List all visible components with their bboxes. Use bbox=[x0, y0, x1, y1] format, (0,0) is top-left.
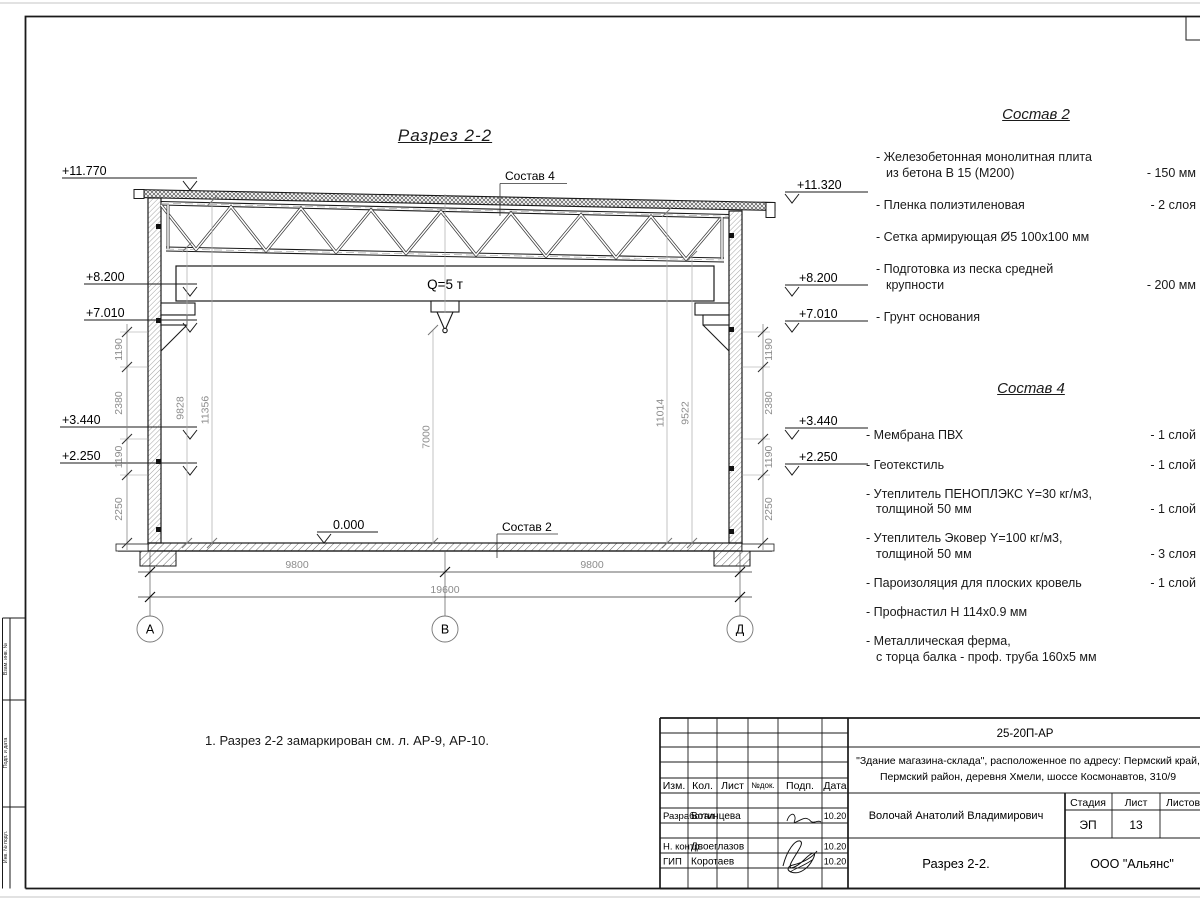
titleblock-date: 10.20 bbox=[824, 857, 847, 867]
elevation-value: +11.320 bbox=[797, 178, 842, 192]
titleblock-name: Двоеглазов bbox=[691, 842, 744, 853]
corbel-right bbox=[695, 303, 729, 351]
dim-value: 9828 bbox=[175, 396, 187, 420]
dim-value: 7000 bbox=[421, 425, 433, 449]
titleblock-drawing-name: Разрез 2-2. bbox=[922, 856, 989, 871]
titleblock-sheets-label: Листов bbox=[1166, 797, 1200, 809]
titleblock-doc-number: 25-20П-АР bbox=[997, 728, 1054, 740]
spec-item: - Утеплитель ПЕНОПЛЭКС Y=30 кг/м3, толщи… bbox=[866, 487, 1196, 518]
spec-item: - Геотекстиль - 1 слой bbox=[866, 458, 1196, 473]
dim-value: 1190 bbox=[113, 446, 125, 469]
callout-roof-label: Состав 4 bbox=[505, 169, 555, 183]
titleblock-name: Вотинцева bbox=[691, 811, 741, 822]
wall-left bbox=[148, 198, 161, 543]
spec-list-4: Состав 4 - Мембрана ПВХ - 1 слой - Геоте… bbox=[866, 380, 1196, 679]
dim-value: 1190 bbox=[113, 338, 125, 361]
dim-value: 19600 bbox=[430, 584, 459, 596]
dim-value: 9800 bbox=[580, 559, 604, 571]
side-strip-label: Инв. № подл. bbox=[3, 831, 9, 863]
axis-label: А bbox=[146, 623, 155, 637]
elevation-value: +8.200 bbox=[86, 270, 125, 284]
foundation-left bbox=[140, 551, 176, 566]
corbel-left bbox=[161, 303, 195, 351]
spec-item: - Пленка полиэтиленовая - 2 слоя bbox=[876, 198, 1196, 213]
titleblock-stage-label: Стадия bbox=[1070, 797, 1106, 809]
section-title: Разрез 2-2 bbox=[370, 126, 520, 146]
dim-value: 11356 bbox=[200, 396, 212, 425]
floor-slab bbox=[148, 543, 742, 551]
drawing-sheet: Взам. инв. № Подп. и дата Инв. № подл. bbox=[0, 0, 1200, 900]
elevation-value: +2.250 bbox=[799, 450, 838, 464]
titleblock-col-data: Дата bbox=[823, 780, 846, 792]
axis-label: Д bbox=[736, 623, 745, 637]
titleblock-stage-value: ЭП bbox=[1079, 818, 1096, 832]
truss-web bbox=[161, 205, 722, 259]
spec-item: - Сетка армирующая Ø5 100х100 мм bbox=[876, 230, 1196, 245]
dim-value: 2250 bbox=[113, 497, 125, 521]
drawing-note: 1. Разрез 2-2 замаркирован см. л. АР-9, … bbox=[205, 733, 489, 748]
dim-value: 2250 bbox=[763, 497, 775, 521]
dim-value: 1190 bbox=[763, 338, 775, 361]
dim-value: 2380 bbox=[763, 391, 775, 415]
titleblock-author: Волочай Анатолий Владимирович bbox=[869, 810, 1044, 822]
spec4-title: Состав 4 bbox=[866, 380, 1196, 398]
axis-label: В bbox=[441, 623, 449, 637]
titleblock-company: ООО "Альянс" bbox=[1090, 857, 1174, 871]
dim-value: 9800 bbox=[285, 559, 309, 571]
titleblock-col-kol: Кол. bbox=[692, 780, 713, 792]
titleblock-col-podp: Подп. bbox=[786, 780, 814, 792]
spec-list-2: Состав 2 - Железобетонная монолитная пли… bbox=[876, 106, 1196, 342]
elevation-value: +11.770 bbox=[62, 164, 107, 178]
apron-left bbox=[116, 544, 148, 551]
elevation-value: +3.440 bbox=[799, 414, 838, 428]
spec-item: - Пароизоляция для плоских кровель - 1 с… bbox=[866, 576, 1196, 591]
zero-level-value: 0.000 bbox=[333, 518, 364, 532]
elevation-value: +7.010 bbox=[86, 306, 125, 320]
side-strip-label: Взам. инв. № bbox=[3, 642, 9, 675]
titleblock-object-line1: "Здание магазина-склада", расположенное … bbox=[856, 755, 1200, 767]
foundation-right bbox=[714, 551, 750, 566]
elevation-value: +2.250 bbox=[62, 449, 101, 463]
titleblock-object-line2: Пермский район, деревня Хмели, шоссе Кос… bbox=[880, 771, 1176, 783]
dim-value: 1190 bbox=[763, 446, 775, 469]
elevation-value: +8.200 bbox=[799, 271, 838, 285]
titleblock-name: Коротаев bbox=[691, 857, 734, 868]
titleblock-sheet-label: Лист bbox=[1125, 797, 1148, 809]
side-strip-label: Подп. и дата bbox=[3, 738, 9, 769]
spec-item: - Железобетонная монолитная плита из бет… bbox=[876, 150, 1196, 181]
elevation-value: +3.440 bbox=[62, 413, 101, 427]
titleblock-role: ГИП bbox=[663, 857, 682, 868]
spec-item: - Подготовка из песка средней крупности … bbox=[876, 262, 1196, 293]
spec-item: - Мембрана ПВХ - 1 слой bbox=[866, 428, 1196, 443]
elevation-value: +7.010 bbox=[799, 307, 838, 321]
dim-value: 2380 bbox=[113, 391, 125, 415]
roof-edge-left bbox=[134, 190, 144, 199]
callout-floor-label: Состав 2 bbox=[502, 520, 552, 534]
elevation-marks-right bbox=[785, 192, 868, 475]
titleblock-col-ndok: №док. bbox=[751, 781, 774, 790]
titleblock-date: 10.20 bbox=[824, 811, 847, 821]
titleblock-col-izm: Изм. bbox=[663, 780, 686, 792]
roof-edge-right bbox=[766, 203, 775, 218]
spec2-title: Состав 2 bbox=[876, 106, 1196, 124]
zero-level-mark bbox=[317, 532, 378, 543]
dim-value: 11014 bbox=[655, 399, 667, 428]
titleblock-col-list: Лист bbox=[721, 780, 744, 792]
building-section bbox=[116, 190, 775, 567]
wall-right bbox=[729, 211, 742, 543]
spec-item: - Грунт основания bbox=[876, 310, 1196, 325]
spec-item: - Металлическая ферма, с торца балка - п… bbox=[866, 634, 1196, 665]
titleblock-sheet-value: 13 bbox=[1129, 818, 1143, 832]
spec-item: - Утеплитель Эковер Y=100 кг/м3, толщино… bbox=[866, 531, 1196, 562]
titleblock-date: 10.20 bbox=[824, 842, 847, 852]
dim-value: 9522 bbox=[680, 401, 692, 425]
spec-item: - Профнастил Н 114х0.9 мм bbox=[866, 605, 1196, 620]
